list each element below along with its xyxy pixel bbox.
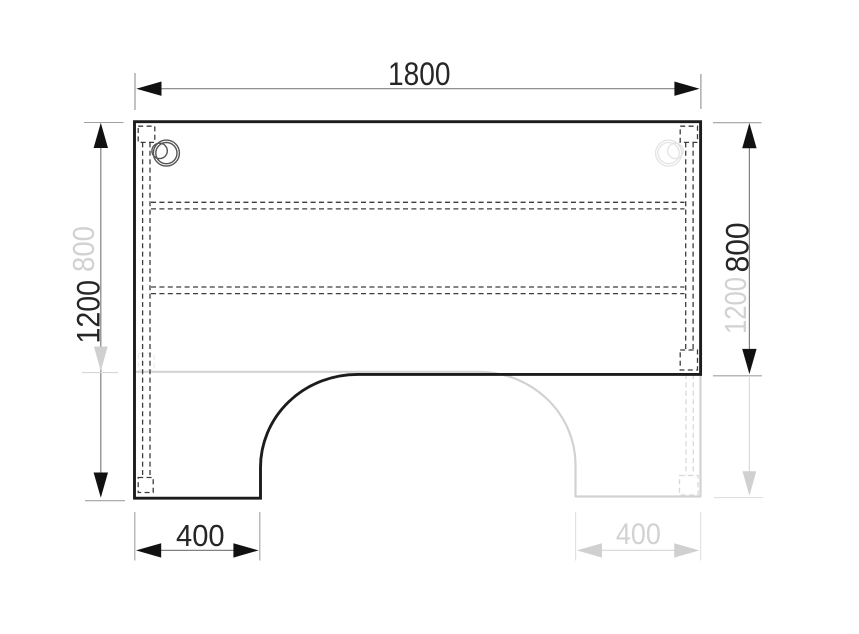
svg-text:800: 800 [719, 222, 755, 272]
svg-text:1200: 1200 [718, 277, 753, 334]
svg-text:1200: 1200 [71, 280, 107, 344]
svg-text:400: 400 [176, 518, 225, 553]
svg-text:1800: 1800 [388, 56, 451, 92]
svg-text:800: 800 [66, 226, 101, 272]
svg-text:400: 400 [616, 518, 661, 551]
